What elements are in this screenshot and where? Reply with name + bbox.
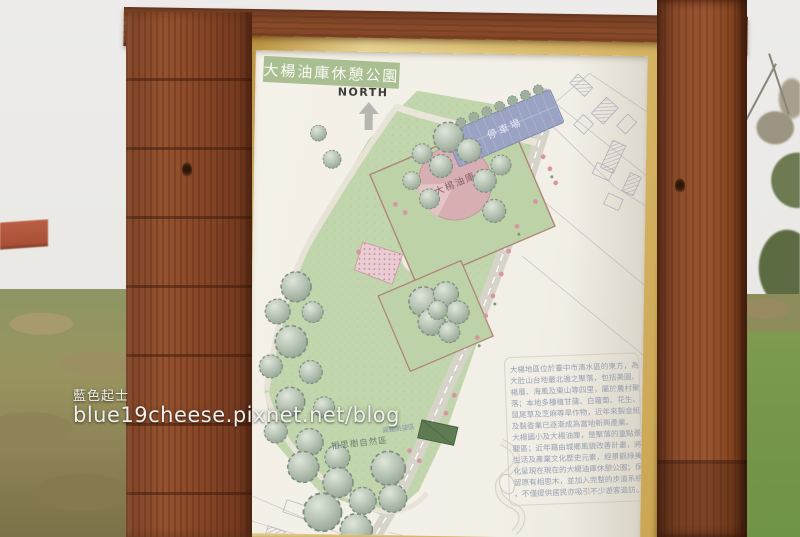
- watermark: 藍色起士 blue19cheese.pixnet.net/blog: [73, 390, 400, 426]
- watermark-url: blue19cheese.pixnet.net/blog: [73, 404, 400, 426]
- sign-left-post: [126, 12, 252, 537]
- photo-of-park-map-sign: 南清路: [0, 0, 800, 537]
- sign-right-post: [657, 0, 747, 537]
- watermark-name: 藍色起士: [73, 390, 400, 404]
- park-map-drawing: 南清路: [248, 50, 648, 537]
- grass-field-right: [741, 294, 800, 537]
- red-roof-building: [0, 219, 48, 249]
- map-panel: 南清路: [248, 50, 648, 537]
- sign-inner-frame: 南清路: [238, 36, 666, 537]
- panel-shading: [248, 50, 648, 537]
